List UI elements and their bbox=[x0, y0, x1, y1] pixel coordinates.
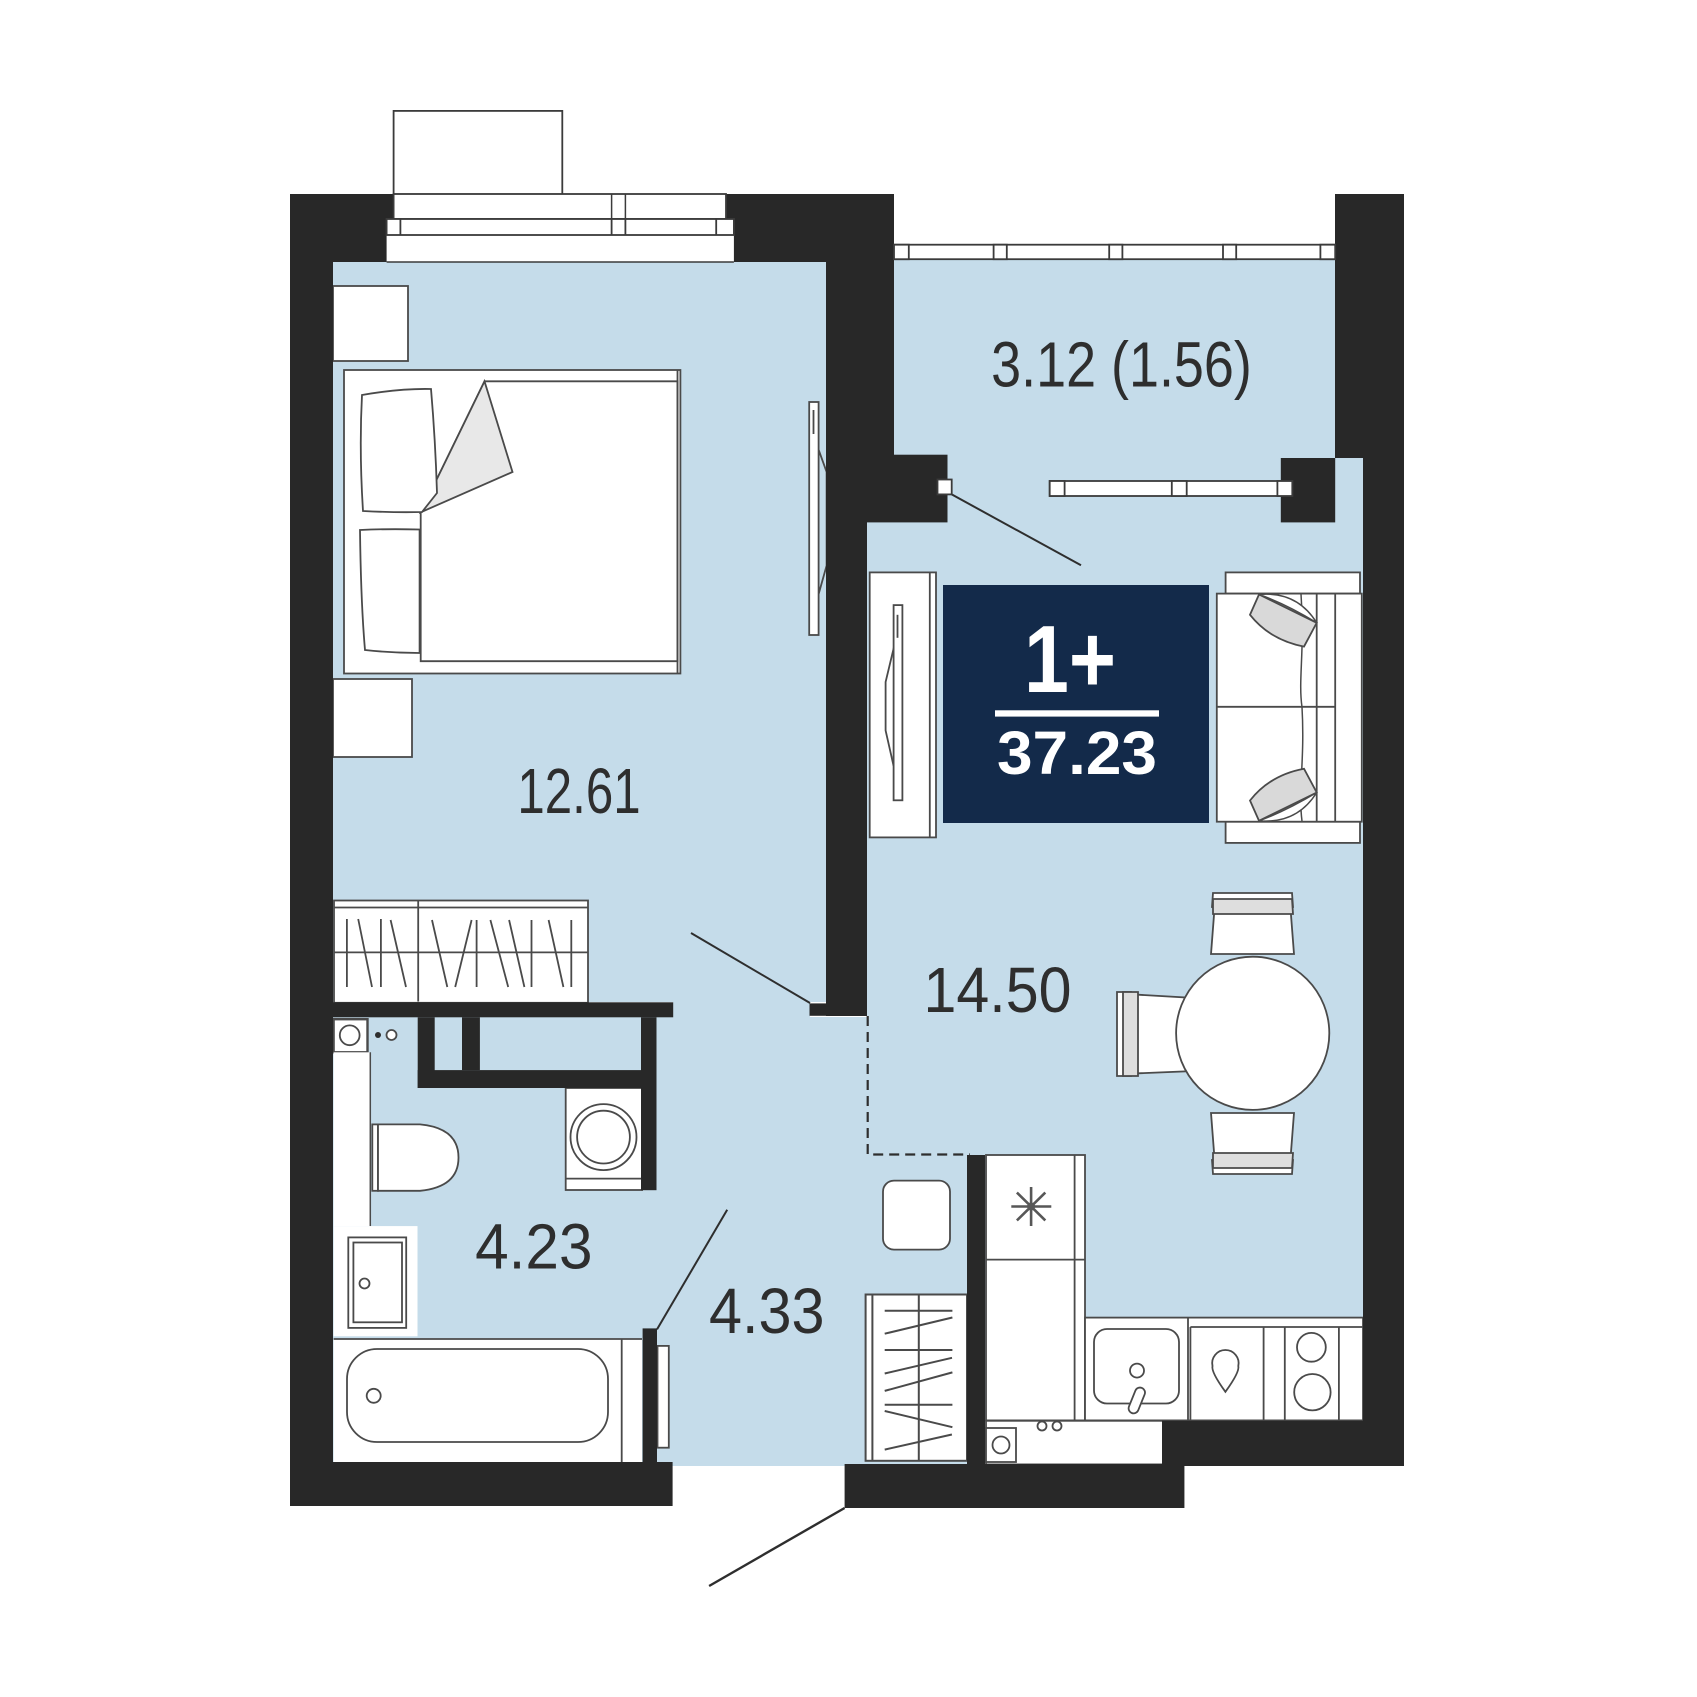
svg-text:1+: 1+ bbox=[1024, 606, 1116, 713]
svg-text:4.33: 4.33 bbox=[709, 1275, 825, 1347]
svg-text:37.23: 37.23 bbox=[997, 719, 1157, 787]
svg-text:4.23: 4.23 bbox=[475, 1211, 592, 1283]
svg-text:3.12 (1.56): 3.12 (1.56) bbox=[991, 329, 1252, 401]
svg-text:12.61: 12.61 bbox=[517, 755, 640, 827]
svg-text:14.50: 14.50 bbox=[924, 954, 1072, 1026]
